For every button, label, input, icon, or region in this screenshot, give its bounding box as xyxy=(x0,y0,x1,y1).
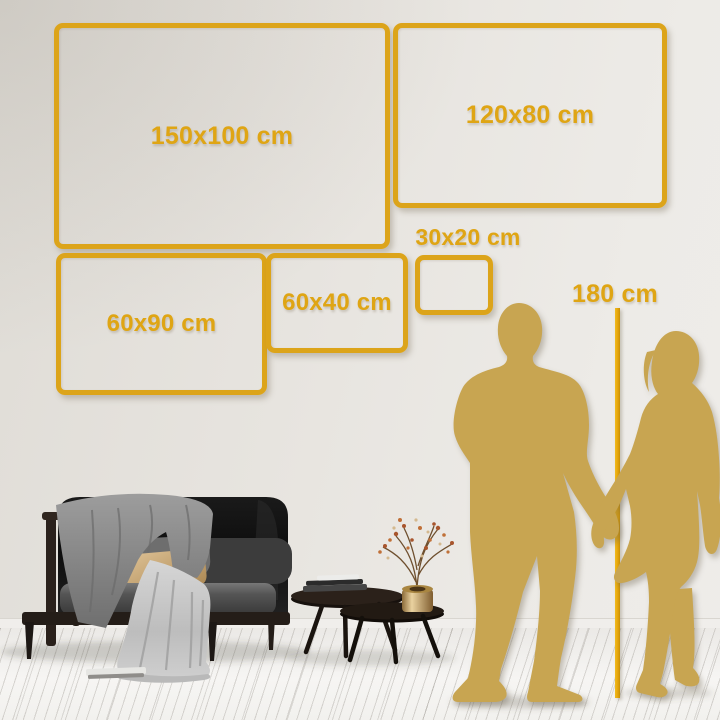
man-silhouette xyxy=(453,303,619,702)
size-guide-image: 150x100 cm 120x80 cm 60x90 cm 60x40 cm 3… xyxy=(0,0,720,720)
woman-silhouette xyxy=(591,331,720,697)
couple-silhouettes xyxy=(0,0,720,720)
